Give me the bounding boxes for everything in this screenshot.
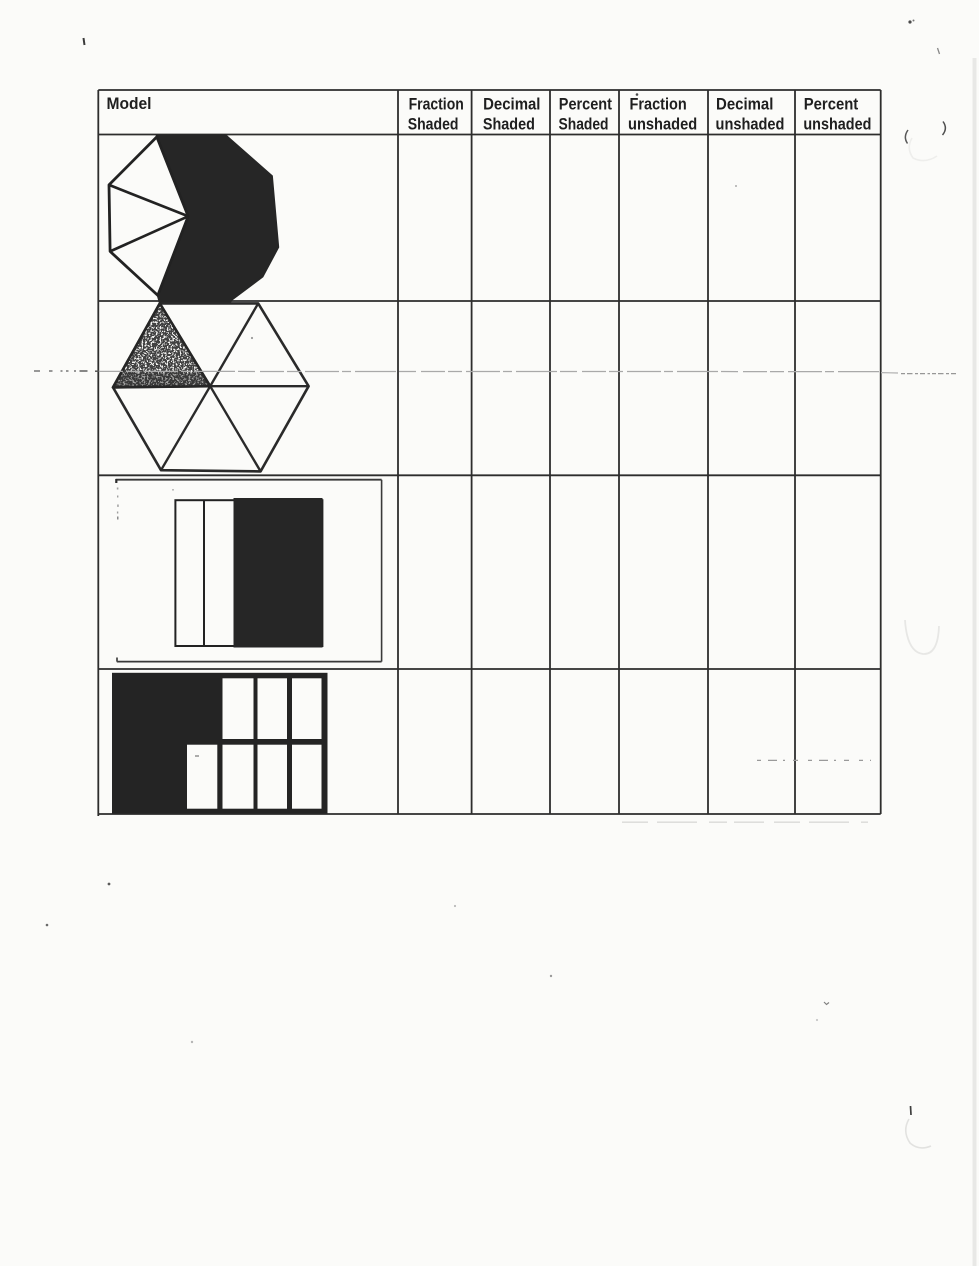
svg-text:unshaded: unshaded <box>803 114 871 133</box>
svg-text:Decimal: Decimal <box>716 94 773 113</box>
svg-text:Decimal: Decimal <box>483 94 540 113</box>
svg-text:Shaded: Shaded <box>559 114 609 133</box>
svg-text:Percent: Percent <box>804 94 859 113</box>
svg-text:Shaded: Shaded <box>408 114 459 133</box>
svg-text:Fraction: Fraction <box>409 94 464 113</box>
svg-text:Model: Model <box>107 94 152 113</box>
svg-text:Percent: Percent <box>559 94 612 113</box>
svg-text:unshaded: unshaded <box>716 114 785 133</box>
svg-text:Fraction: Fraction <box>630 94 687 113</box>
svg-text:unshaded: unshaded <box>628 114 697 133</box>
svg-text:Shaded: Shaded <box>483 114 535 133</box>
